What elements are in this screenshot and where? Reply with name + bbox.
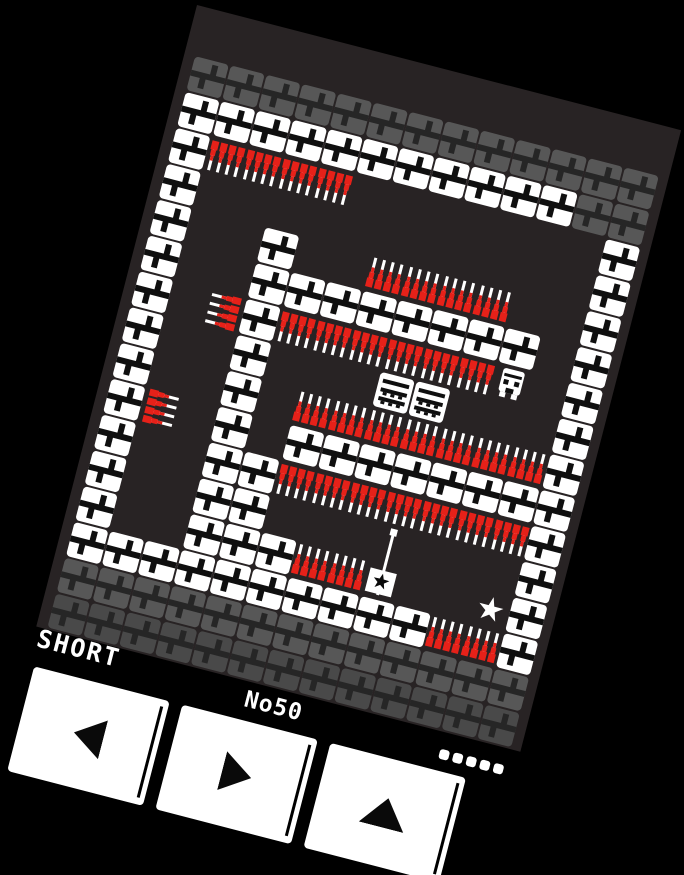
life-dot — [479, 759, 491, 771]
life-dot — [438, 749, 450, 761]
game-area — [36, 5, 681, 752]
life-dot — [492, 763, 504, 775]
spikes-right — [138, 387, 183, 432]
spikes-down — [310, 164, 355, 209]
screenshot-stage: SHORT No50 — [0, 0, 684, 875]
right-arrow-icon — [217, 751, 256, 797]
enemy-sprite — [488, 363, 533, 408]
life-dot — [465, 756, 477, 768]
up-arrow-icon — [359, 792, 411, 833]
tile-board — [46, 55, 660, 749]
life-dot — [452, 752, 464, 764]
goal-flag — [361, 523, 415, 604]
phone-screen: SHORT No50 — [0, 5, 681, 875]
move-left-button[interactable] — [4, 663, 174, 810]
left-arrow-icon — [69, 713, 108, 759]
brick-gray-dark — [476, 703, 521, 748]
